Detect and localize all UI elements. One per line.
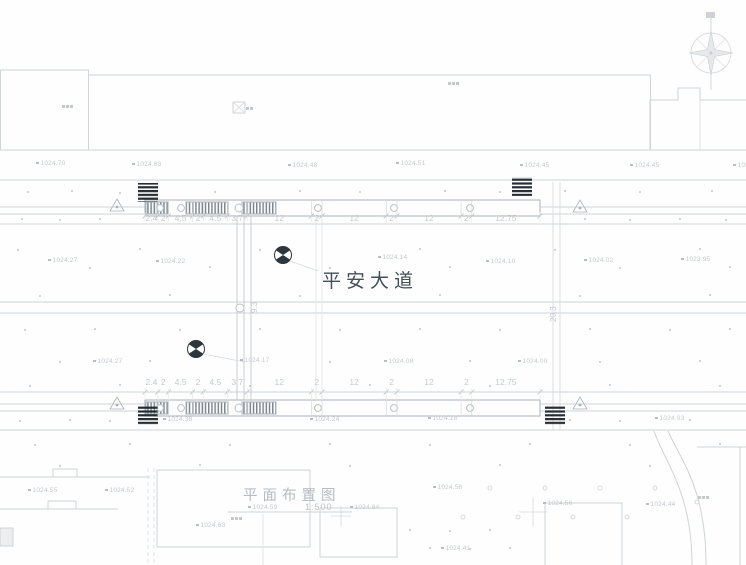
survey-dot [39,295,41,297]
road-name-label: 平安大道 [322,266,418,293]
small-structure [0,528,13,546]
survey-dot [584,218,586,220]
elevation-label: 1024.18 [428,415,457,422]
dimension-label: 12 [424,377,434,387]
dimension-label: 12 [275,377,285,387]
survey-dot [299,295,301,297]
pier-circle [235,404,243,412]
survey-dot [419,328,421,330]
survey-dot [469,360,471,362]
elevation-label: 1024.00 [518,358,547,365]
survey-dot [169,294,171,296]
road-lower [0,392,746,430]
elevation-label: 1024.45 [520,162,549,169]
dimension-label: 12 [424,213,434,223]
warning-triangle-icon [110,199,124,211]
survey-dot [179,329,181,331]
dimension-label: 2 [389,213,394,223]
dimension-label: 2 [389,377,394,387]
stair-hatch [186,202,228,214]
building-outline [650,88,746,150]
survey-dot [499,191,501,193]
survey-circle [571,515,575,519]
dimension-label: 3.7 [231,377,243,387]
dimension-label: 2.4 [146,377,158,387]
survey-dot [719,443,721,445]
survey-dot [669,329,671,331]
elevation-label: 1024.45 [630,162,659,169]
survey-dot [249,385,251,387]
building-outline [89,75,651,150]
pier-circle [178,205,185,212]
dimension-label: 12 [349,213,359,223]
elevation-label: 1024.51 [396,160,425,167]
survey-dot [109,420,111,422]
dimension-label: 2 [314,377,319,387]
survey-dot [259,249,261,251]
road-upper [0,180,746,224]
survey-dot [329,361,331,363]
survey-dot [214,191,216,193]
survey-point-symbol [188,341,246,363]
elevation-label: 1024.63 [132,161,161,168]
survey-dot [489,529,491,531]
pier-circle [391,405,398,412]
survey-dot [699,248,701,250]
north-compass-icon [689,12,733,90]
vertical-dimension-label: 9.3 [250,302,259,313]
survey-dot [589,328,591,330]
survey-dot [719,385,721,387]
road-median-lines [0,302,746,313]
dimension-label: 2 [161,377,166,387]
survey-dot [299,190,301,192]
survey-dot [439,294,441,296]
survey-dot [499,329,501,331]
building-outline [320,508,397,557]
elevation-label: 1024.24 [310,416,339,423]
survey-dot [329,443,331,445]
elevation-label: 1024.38 [163,416,192,423]
survey-dot [725,219,727,221]
survey-dot [59,465,61,467]
elevation-label: 1024.58 [433,484,462,491]
survey-dot [17,249,19,251]
survey-dot [34,444,36,446]
elevation-label: 1024.10 [486,258,515,265]
pier-circle [178,405,185,412]
dimension-label: 2 [196,377,201,387]
dimension-label: 4.5 [209,377,221,387]
survey-dot [129,443,131,445]
survey-dot [711,190,713,192]
elevation-label: 1024.41 [441,545,470,552]
elevation-label: 1024.08 [384,358,413,365]
survey-dot [89,267,91,269]
dimension-label: 3.7 [231,213,243,223]
survey-dot [29,385,31,387]
elevation-label: 1024.17 [240,357,269,364]
survey-dot [554,249,556,251]
survey-dot [139,248,141,250]
survey-dot [119,384,121,386]
dimension-label: 2 [464,213,469,223]
stair-hatch [186,402,228,414]
survey-circle [461,515,465,519]
warning-triangle-icon [573,397,587,409]
elevation-label: 1024.55 [28,487,57,494]
survey-circle [625,515,629,519]
dimension-label: 12.75 [495,377,517,387]
plan-scale: 1:500 [305,502,333,512]
tiny-text-marks [62,82,709,520]
elevation-label: 1024.56 [543,500,572,507]
dimension-label: 2 [196,213,201,223]
survey-dot [409,529,411,531]
survey-dot [729,328,731,330]
crosswalk-block [138,183,158,202]
survey-dot [359,191,361,193]
elevation-label: 1024.44 [646,501,675,508]
building-outline [545,503,622,565]
survey-point-symbol [275,247,319,272]
survey-circle [488,486,492,490]
survey-circle [653,486,657,490]
dimension-label: 12.75 [495,213,517,223]
survey-dot [27,191,29,193]
survey-dot [419,248,421,250]
survey-dot [529,443,531,445]
elevation-label: 1024.14 [378,254,407,261]
survey-dot [339,329,341,331]
footbridge-upper-band [145,200,540,216]
crosswalk-block [138,406,158,425]
pier-circle [391,205,398,212]
elevation-label: 1024.63 [196,522,225,529]
dimension-label: 2 [161,213,166,223]
dimension-label: 12 [349,377,359,387]
building-outline [157,470,310,547]
survey-dot [619,420,621,422]
dimension-label: 2 [464,377,469,387]
survey-dot [729,266,731,268]
dimension-label: 12 [275,213,285,223]
elevation-label: 1024.22 [156,258,185,265]
survey-dot [99,218,101,220]
survey-dot [71,190,73,192]
buildings-top [0,70,746,150]
survey-dot [209,266,211,268]
survey-dot [609,384,611,386]
site-plan-canvas: 2.424.524.53.712212212212.752.424.524.53… [0,0,746,565]
survey-dot [689,419,691,421]
buildings-bottom [0,468,622,565]
dimension-label: 4.5 [209,213,221,223]
survey-dot [21,218,23,220]
survey-dot [629,219,631,221]
dimension-label: 4.5 [175,213,187,223]
survey-dot [709,294,711,296]
survey-dot [679,218,681,220]
survey-crosses [331,498,547,526]
survey-dot [69,419,71,421]
survey-dot [499,464,501,466]
survey-dot [19,420,21,422]
survey-dot [429,444,431,446]
survey-circle [598,486,602,490]
building-outline [1,70,89,150]
pier-circle [315,405,322,412]
survey-dot [449,530,451,532]
survey-circle [516,515,520,519]
pier-circle [315,205,322,212]
survey-dot [629,444,631,446]
elevation-label: 1024.84 [350,504,379,511]
survey-dot [59,219,61,221]
survey-dot [349,465,351,467]
dimension-label: 4.5 [175,377,187,387]
survey-dot [149,360,151,362]
elevation-label: 1024.03 [655,415,684,422]
survey-dot [229,444,231,446]
survey-dot [24,329,26,331]
elevation-label: 1024.27 [93,358,122,365]
elevation-label: 1024.70 [36,160,65,167]
elevation-label: 1024.02 [584,257,613,264]
survey-circle [543,486,547,490]
survey-dot [444,190,446,192]
footbridge-lower-band [145,400,540,416]
survey-dot [579,295,581,297]
warning-triangle-icon [573,200,587,212]
survey-dot [259,328,261,330]
warning-triangle-icon [110,397,124,409]
survey-dot [639,191,641,193]
elevation-label: 1024.59 [248,504,277,511]
elevation-label: 1023.95 [681,256,710,263]
pier-circle [235,204,243,212]
survey-dot [119,192,121,194]
pier-circle [467,405,474,412]
survey-dot [369,384,371,386]
crosswalk-block [545,406,565,425]
crosswalk-block [512,177,532,196]
survey-dot [599,361,601,363]
survey-dot [649,465,651,467]
survey-dot [564,190,566,192]
dimension-label: 2 [314,213,319,223]
survey-dot [199,464,201,466]
survey-dot [699,360,701,362]
pier-circle [467,205,474,212]
survey-dot [569,419,571,421]
survey-dot [489,385,491,387]
survey-dot [449,266,451,268]
elevation-label: 1024.46 [733,162,746,169]
survey-dot [619,267,621,269]
survey-dot [94,328,96,330]
survey-dot [59,361,61,363]
elevation-label: 1024.27 [48,257,77,264]
elevation-label: 1024.48 [288,162,317,169]
survey-dot [429,547,431,549]
vertical-dimension-label: 20.3 [549,306,558,322]
elevation-label: 1024.52 [105,487,134,494]
survey-dot [509,547,511,549]
